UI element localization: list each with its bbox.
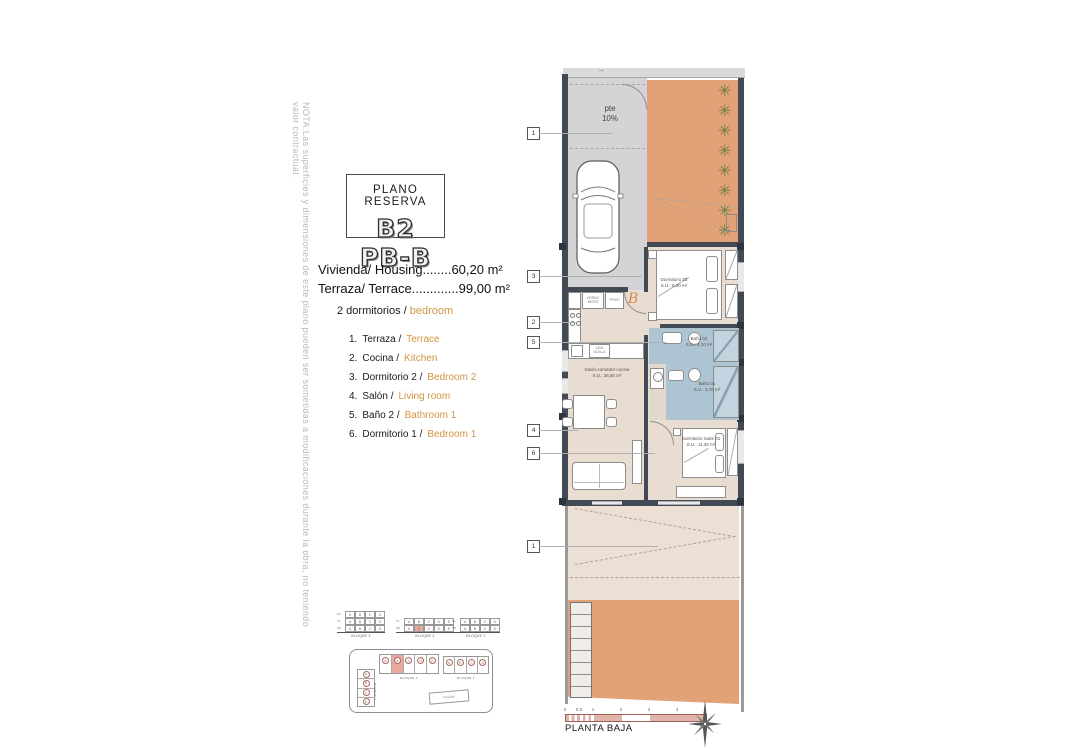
window	[738, 430, 744, 464]
scale-segment	[622, 715, 650, 721]
room-label-bath1: Baño 01 S.U.: 3,70 m²	[684, 381, 730, 393]
legend-item: 6.Dormitorio 1 /Bedroom 1	[349, 429, 476, 440]
pillow	[706, 256, 718, 282]
legend-es: Dormitorio 2 /	[362, 372, 422, 383]
unit: A	[444, 657, 455, 673]
sink	[668, 370, 684, 381]
legend-es: Dormitorio 1 /	[362, 429, 422, 440]
terrace-area-line: Terraza/ Terrace.............99,00 m²	[318, 280, 510, 299]
wall	[647, 242, 744, 247]
nightstand	[648, 250, 657, 259]
table-cell: A	[404, 618, 414, 625]
leader-line	[539, 430, 578, 431]
plant-icon: ✳	[718, 184, 731, 200]
wall	[562, 500, 744, 506]
table-cell: A	[345, 618, 355, 625]
unit: E	[427, 655, 438, 673]
legend-es: Baño 2 /	[362, 410, 399, 421]
scale-segment	[650, 715, 678, 721]
scale-tick: 3	[648, 707, 651, 712]
tv-bench	[632, 440, 642, 484]
sofa-back-line	[574, 482, 624, 483]
table-cell: C	[365, 618, 375, 625]
oven-cabinet: HORNO MICRO	[582, 292, 604, 309]
island-sink	[571, 345, 583, 357]
top-edge	[563, 68, 745, 78]
siteplan-caption-vertical: BLOQUE 3	[373, 683, 377, 700]
burner	[576, 313, 581, 318]
legend-number: 2.	[349, 353, 357, 364]
washer-drum	[653, 372, 663, 382]
row-label: PB	[396, 625, 404, 632]
table-cell: C	[424, 618, 434, 625]
kitchen-tall-cabinet	[568, 292, 581, 309]
room-label-suite: Dormitorio Suite 01 S.U.: 11,20 m²	[674, 436, 728, 448]
legend-number: 1.	[349, 334, 357, 345]
table-cell: B	[470, 625, 480, 632]
leader-line	[539, 322, 577, 323]
dining-table	[573, 395, 605, 429]
siteplan-pool: PISCINA	[429, 689, 470, 704]
table-cell: C	[424, 625, 434, 632]
dresser	[676, 486, 726, 498]
legend-en: Bedroom 1	[427, 429, 476, 440]
table-caption: BLOQUE 2	[396, 634, 454, 638]
unit-highlight: B	[392, 655, 404, 673]
keyplan-table-bloque2: P1 A B C D E PB A B C D E BLOQUE 2	[396, 618, 454, 638]
window	[658, 501, 700, 505]
table-caption: BLOQUE 3	[337, 634, 385, 638]
leader-line	[539, 133, 612, 134]
table-cell: D	[490, 618, 500, 625]
bedrooms-es: 2 dormitorios /	[337, 305, 407, 317]
nightstand	[673, 428, 681, 436]
legend-number: 4.	[349, 391, 357, 402]
legend-en: Bathroom 1	[405, 410, 457, 421]
scale-tick: 4	[676, 707, 679, 712]
entry-letter: B	[628, 291, 638, 307]
legend-item: 2.Cocina /Kitchen	[349, 353, 476, 364]
window	[738, 262, 744, 292]
table-cell: D	[375, 611, 385, 618]
table-cell: C	[480, 625, 490, 632]
scale-bar	[565, 714, 707, 722]
unit: D	[415, 655, 427, 673]
legend-es: Cocina /	[362, 353, 399, 364]
table-cell: B	[355, 625, 365, 632]
pillow	[706, 288, 718, 314]
bedrooms-line: 2 dormitorios / bedroom	[337, 305, 453, 317]
room-label-living: Salón-comedor-cocina S.U.: 26,50 m²	[578, 367, 636, 379]
legend: 1.Terraza /Terrace 2.Cocina /Kitchen 3.D…	[349, 334, 476, 440]
fridge-cabinet: FRIGO	[605, 292, 624, 309]
column	[737, 243, 744, 250]
title-block: PLANO RESERVA B2 PB-B	[346, 174, 445, 238]
chair	[562, 399, 573, 409]
table-cell: B	[414, 618, 424, 625]
planter-box	[726, 214, 737, 232]
leader-line	[539, 276, 642, 277]
chair	[606, 399, 617, 409]
scale-tick: 2	[620, 707, 623, 712]
window	[562, 378, 568, 394]
area-summary: Vivienda/ Housing........60,20 m² Terraz…	[318, 261, 510, 299]
pool-label: PISCINA	[443, 694, 455, 699]
wardrobe	[725, 250, 738, 280]
scale-tick: 0	[564, 707, 567, 712]
window	[592, 501, 622, 505]
scale-segment	[566, 715, 594, 721]
table-cell-highlight: B	[414, 625, 424, 632]
legend-es: Terraza /	[362, 334, 401, 345]
wardrobe	[727, 428, 738, 476]
table-cell: A	[345, 611, 355, 618]
floor-plan-sheet: NOTA:Las superficies y dimensiones de es…	[0, 0, 1080, 750]
legend-number: 5.	[349, 410, 357, 421]
table-cell: C	[365, 611, 375, 618]
legend-item: 1.Terraza /Terrace	[349, 334, 476, 345]
chair	[562, 417, 573, 427]
table-cell: B	[355, 611, 365, 618]
bottom-terrace	[568, 600, 739, 704]
legend-en: Bedroom 2	[427, 372, 476, 383]
unit: C	[404, 655, 416, 673]
unit: D	[478, 657, 488, 673]
column	[559, 498, 566, 505]
legend-es: Salón /	[362, 391, 393, 402]
terrace-steps	[570, 602, 592, 698]
dishwasher: LAVA VAJILLA	[589, 344, 610, 358]
dashed-line	[570, 84, 645, 85]
siteplan-bloque2: A B C D E	[379, 654, 439, 674]
siteplan: A B C D E BLOQUE 2 A B C D BLOQUE 1 A B …	[349, 649, 493, 713]
scale-tick: 0.5	[576, 707, 582, 712]
table-cell: A	[460, 625, 470, 632]
legend-number: 6.	[349, 429, 357, 440]
plan-reserva-label: PLANO RESERVA	[347, 184, 444, 208]
table-cell: D	[490, 625, 500, 632]
legend-en: Terrace	[406, 334, 439, 345]
legend-item: 4.Salón /Living room	[349, 391, 476, 402]
siteplan-caption: BLOQUE 1	[443, 676, 489, 680]
sofa-cushion-line	[599, 464, 600, 488]
unit: A	[380, 655, 392, 673]
plant-icon: ✳	[718, 164, 731, 180]
wall	[644, 335, 648, 505]
plan-name: PLANTA BAJA	[565, 723, 633, 734]
unit: C	[358, 689, 374, 698]
siteplan-bloque1: A B C D	[443, 656, 489, 674]
legend-number: 3.	[349, 372, 357, 383]
table-cell: D	[434, 618, 444, 625]
table-cell: D	[375, 625, 385, 632]
lower-terrace	[568, 505, 739, 600]
side-note: NOTA:Las superficies y dimensiones de es…	[291, 102, 311, 632]
row-label: PB	[337, 625, 345, 632]
housing-area-line: Vivienda/ Housing........60,20 m²	[318, 261, 510, 280]
plant-icon: ✳	[718, 84, 731, 100]
row-label: P2	[337, 611, 345, 618]
pillow	[715, 455, 724, 473]
terrace-wall	[741, 506, 744, 712]
row-label: P1	[396, 618, 404, 625]
legend-item: 5.Baño 2 /Bathroom 1	[349, 410, 476, 421]
bedrooms-en: bedroom	[410, 305, 453, 317]
column	[559, 243, 566, 250]
room-label-bath2: Baño 02 S.U.: 4,10 m²	[676, 336, 722, 348]
table-cell: A	[404, 625, 414, 632]
plant-icon: ✳	[718, 104, 731, 120]
unit: A	[358, 670, 374, 679]
toilet	[688, 368, 701, 382]
legend-item: 3.Dormitorio 2 /Bedroom 2	[349, 372, 476, 383]
dashed-line	[570, 148, 645, 149]
wardrobe	[725, 284, 738, 318]
chair	[606, 417, 617, 427]
table-cell: D	[434, 625, 444, 632]
keyplan-table-bloque3: P2 A B C D P1 A B C D PB A B C D BLOQUE …	[337, 611, 385, 638]
legend-en: Living room	[398, 391, 450, 402]
table-cell: B	[355, 618, 365, 625]
scale-tick: 1	[592, 707, 595, 712]
unit: C	[467, 657, 478, 673]
siteplan-caption: BLOQUE 2	[379, 676, 439, 680]
table-cell: B	[470, 618, 480, 625]
leader-line	[539, 342, 666, 343]
unit: D	[358, 698, 374, 706]
scale-segment	[594, 715, 622, 721]
row-label: P1	[452, 618, 460, 625]
terrace-wall	[565, 506, 568, 704]
burner	[570, 313, 575, 318]
unit: B	[455, 657, 466, 673]
row-label: PB	[452, 625, 460, 632]
plant-icon: ✳	[718, 144, 731, 160]
plant-icon: ✳	[718, 124, 731, 140]
table-cell: C	[365, 625, 375, 632]
leader-line	[539, 546, 658, 547]
car-icon	[572, 158, 624, 276]
table-cell: C	[480, 618, 490, 625]
column	[737, 498, 744, 505]
room-label-dorm2: Dormitorio 02 S.U.: 9,30 m²	[650, 277, 698, 289]
unit: B	[358, 679, 374, 688]
table-caption: BLOQUE 1	[452, 634, 500, 638]
nightstand	[648, 312, 657, 321]
table-cell: D	[375, 618, 385, 625]
table-cell: A	[460, 618, 470, 625]
entry-arrow-icon: →	[596, 64, 605, 74]
table-cell: A	[345, 625, 355, 632]
leader-line	[539, 453, 655, 454]
row-label: P1	[337, 618, 345, 625]
legend-en: Kitchen	[404, 353, 437, 364]
slope-label: pte 10%	[592, 104, 628, 125]
compass-icon	[688, 700, 722, 748]
keyplan-table-bloque1: P1 A B C D PB A B C D BLOQUE 1	[452, 618, 500, 638]
dashed-line	[570, 577, 740, 578]
